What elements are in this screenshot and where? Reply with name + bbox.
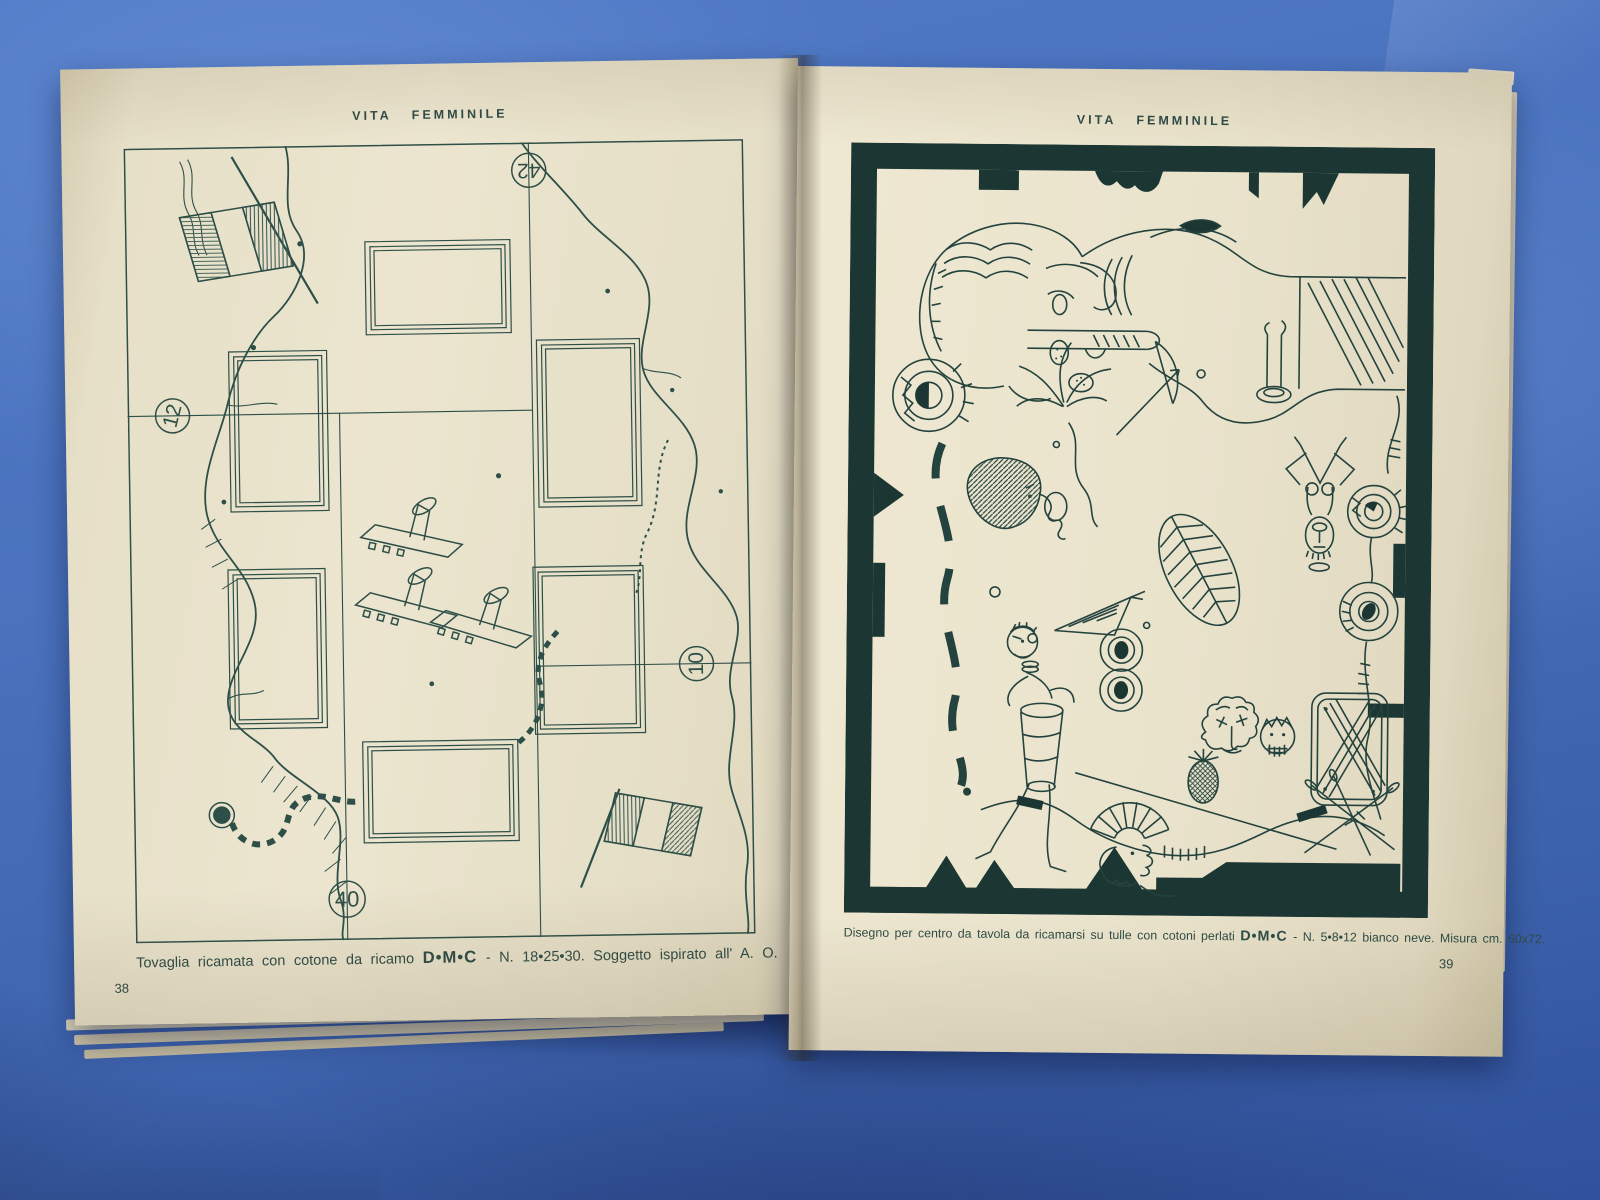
ribbed-leaf (1142, 501, 1256, 638)
spiky-plant (1017, 340, 1112, 407)
embroidery-frames (223, 238, 647, 845)
svg-text:40: 40 (335, 886, 360, 911)
horn-cone (1055, 590, 1145, 635)
dark-stepped-border (844, 143, 1435, 919)
caption-text: - N. 18•25•30. Soggetto ispirato all' A.… (486, 945, 778, 966)
flag-icon (579, 788, 703, 888)
left-running-head: VITA FEMMINILE (61, 102, 799, 128)
right-embroidery-plate (844, 143, 1435, 919)
mask (1260, 717, 1294, 756)
bow-and-arrow (1116, 341, 1179, 436)
map-tablecloth-design: 42 12 10 40 (123, 139, 755, 944)
right-page: VITA FEMMINILE (789, 66, 1512, 1057)
disc-chain (1338, 395, 1409, 820)
profile-head (967, 457, 1067, 539)
reclining-figure (919, 217, 1407, 424)
right-running-head: VITA FEMMINILE (797, 110, 1511, 131)
svg-text:42: 42 (517, 159, 541, 182)
left-page-number: 38 (114, 981, 129, 996)
caption-text: - N. 5•8•12 bianco neve. Misura cm. 60x7… (1293, 930, 1545, 946)
left-page: VITA FEMMINILE (60, 58, 813, 1025)
center-gutter-shadow (778, 55, 822, 1061)
mortar-with-pestles (1257, 320, 1292, 402)
left-embroidery-plate: 42 12 10 40 (123, 139, 755, 944)
double-rings (1100, 629, 1143, 711)
caption-text: Disegno per centro da tavola da ricamars… (844, 925, 1235, 943)
port-marker (209, 802, 234, 827)
right-caption: Disegno per centro da tavola da ricamars… (844, 924, 1430, 946)
dmc-brand: D•M•C (1240, 928, 1288, 944)
svg-text:10: 10 (685, 652, 708, 676)
upside-down-statue (1285, 437, 1354, 572)
left-caption: Tovaglia ricamata con cotone da ricamo D… (136, 943, 758, 973)
snake (1068, 423, 1099, 527)
pineapple (1188, 749, 1219, 803)
dmc-brand: D•M•C (422, 947, 477, 967)
photo-of-open-magazine: VITA FEMMINILE (0, 0, 1600, 1200)
shield-disc (893, 359, 975, 432)
svg-text:12: 12 (159, 402, 187, 430)
caption-text: Tovaglia ricamata con cotone da ricamo (136, 951, 414, 971)
drummer-figure (975, 622, 1074, 872)
right-page-number: 39 (1439, 956, 1454, 971)
centerpiece-design (844, 143, 1435, 919)
beaded-band (933, 443, 966, 785)
mask (1201, 697, 1258, 753)
